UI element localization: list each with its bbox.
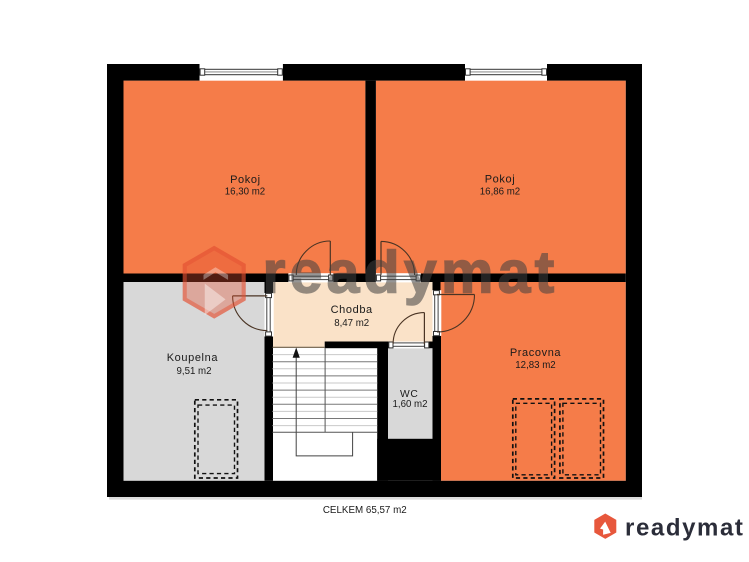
svg-text:CELKEM 65,57 m2: CELKEM 65,57 m2 bbox=[323, 505, 407, 516]
svg-text:Chodba: Chodba bbox=[331, 304, 373, 316]
svg-text:readymat: readymat bbox=[625, 515, 745, 542]
svg-text:readymat: readymat bbox=[263, 240, 559, 306]
svg-text:Pracovna: Pracovna bbox=[510, 347, 562, 359]
svg-text:Pokoj: Pokoj bbox=[485, 174, 516, 186]
svg-text:Pokoj: Pokoj bbox=[230, 174, 261, 186]
svg-text:8,47 m2: 8,47 m2 bbox=[334, 318, 369, 329]
svg-text:12,83 m2: 12,83 m2 bbox=[515, 360, 555, 371]
svg-text:9,51 m2: 9,51 m2 bbox=[176, 366, 211, 377]
svg-text:Koupelna: Koupelna bbox=[167, 352, 219, 364]
svg-text:16,86 m2: 16,86 m2 bbox=[480, 186, 520, 197]
svg-text:1,60 m2: 1,60 m2 bbox=[392, 399, 427, 410]
svg-text:16,30 m2: 16,30 m2 bbox=[225, 187, 265, 198]
